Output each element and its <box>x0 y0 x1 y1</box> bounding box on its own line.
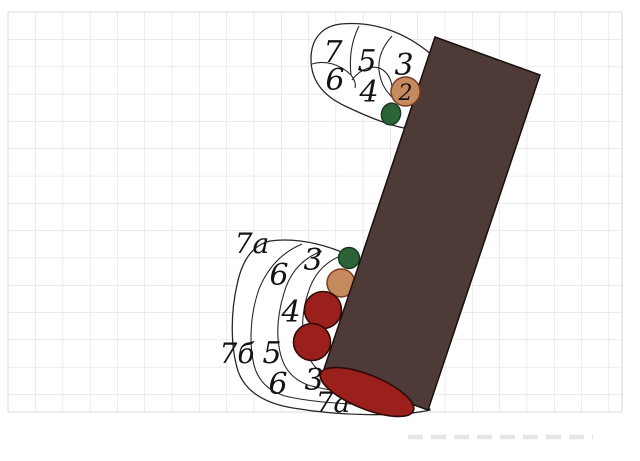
anatomy-diagram-svg: 7a 3 6 4 5 7б 6 3 7a 7 6 5 4 3 2 <box>0 0 640 461</box>
bottom-label-7a-top: 7a <box>235 227 270 260</box>
bottom-green-node <box>339 248 360 269</box>
bottom-label-6-top: 6 <box>269 258 288 293</box>
diagram-canvas: 7a 3 6 4 5 7б 6 3 7a 7 6 5 4 3 2 <box>0 0 640 461</box>
top-label-6: 6 <box>325 63 344 98</box>
bottom-label-4: 4 <box>280 295 300 330</box>
top-badge-label-2: 2 <box>398 81 413 106</box>
bottom-red-node-lower <box>294 324 331 361</box>
bottom-label-3-top: 3 <box>303 243 322 278</box>
bottom-label-6-bottom: 6 <box>268 367 287 402</box>
top-label-4: 4 <box>358 75 378 110</box>
bottom-label-5: 5 <box>262 336 281 371</box>
top-label-5: 5 <box>357 44 376 79</box>
bottom-label-7b: 7б <box>220 337 256 370</box>
